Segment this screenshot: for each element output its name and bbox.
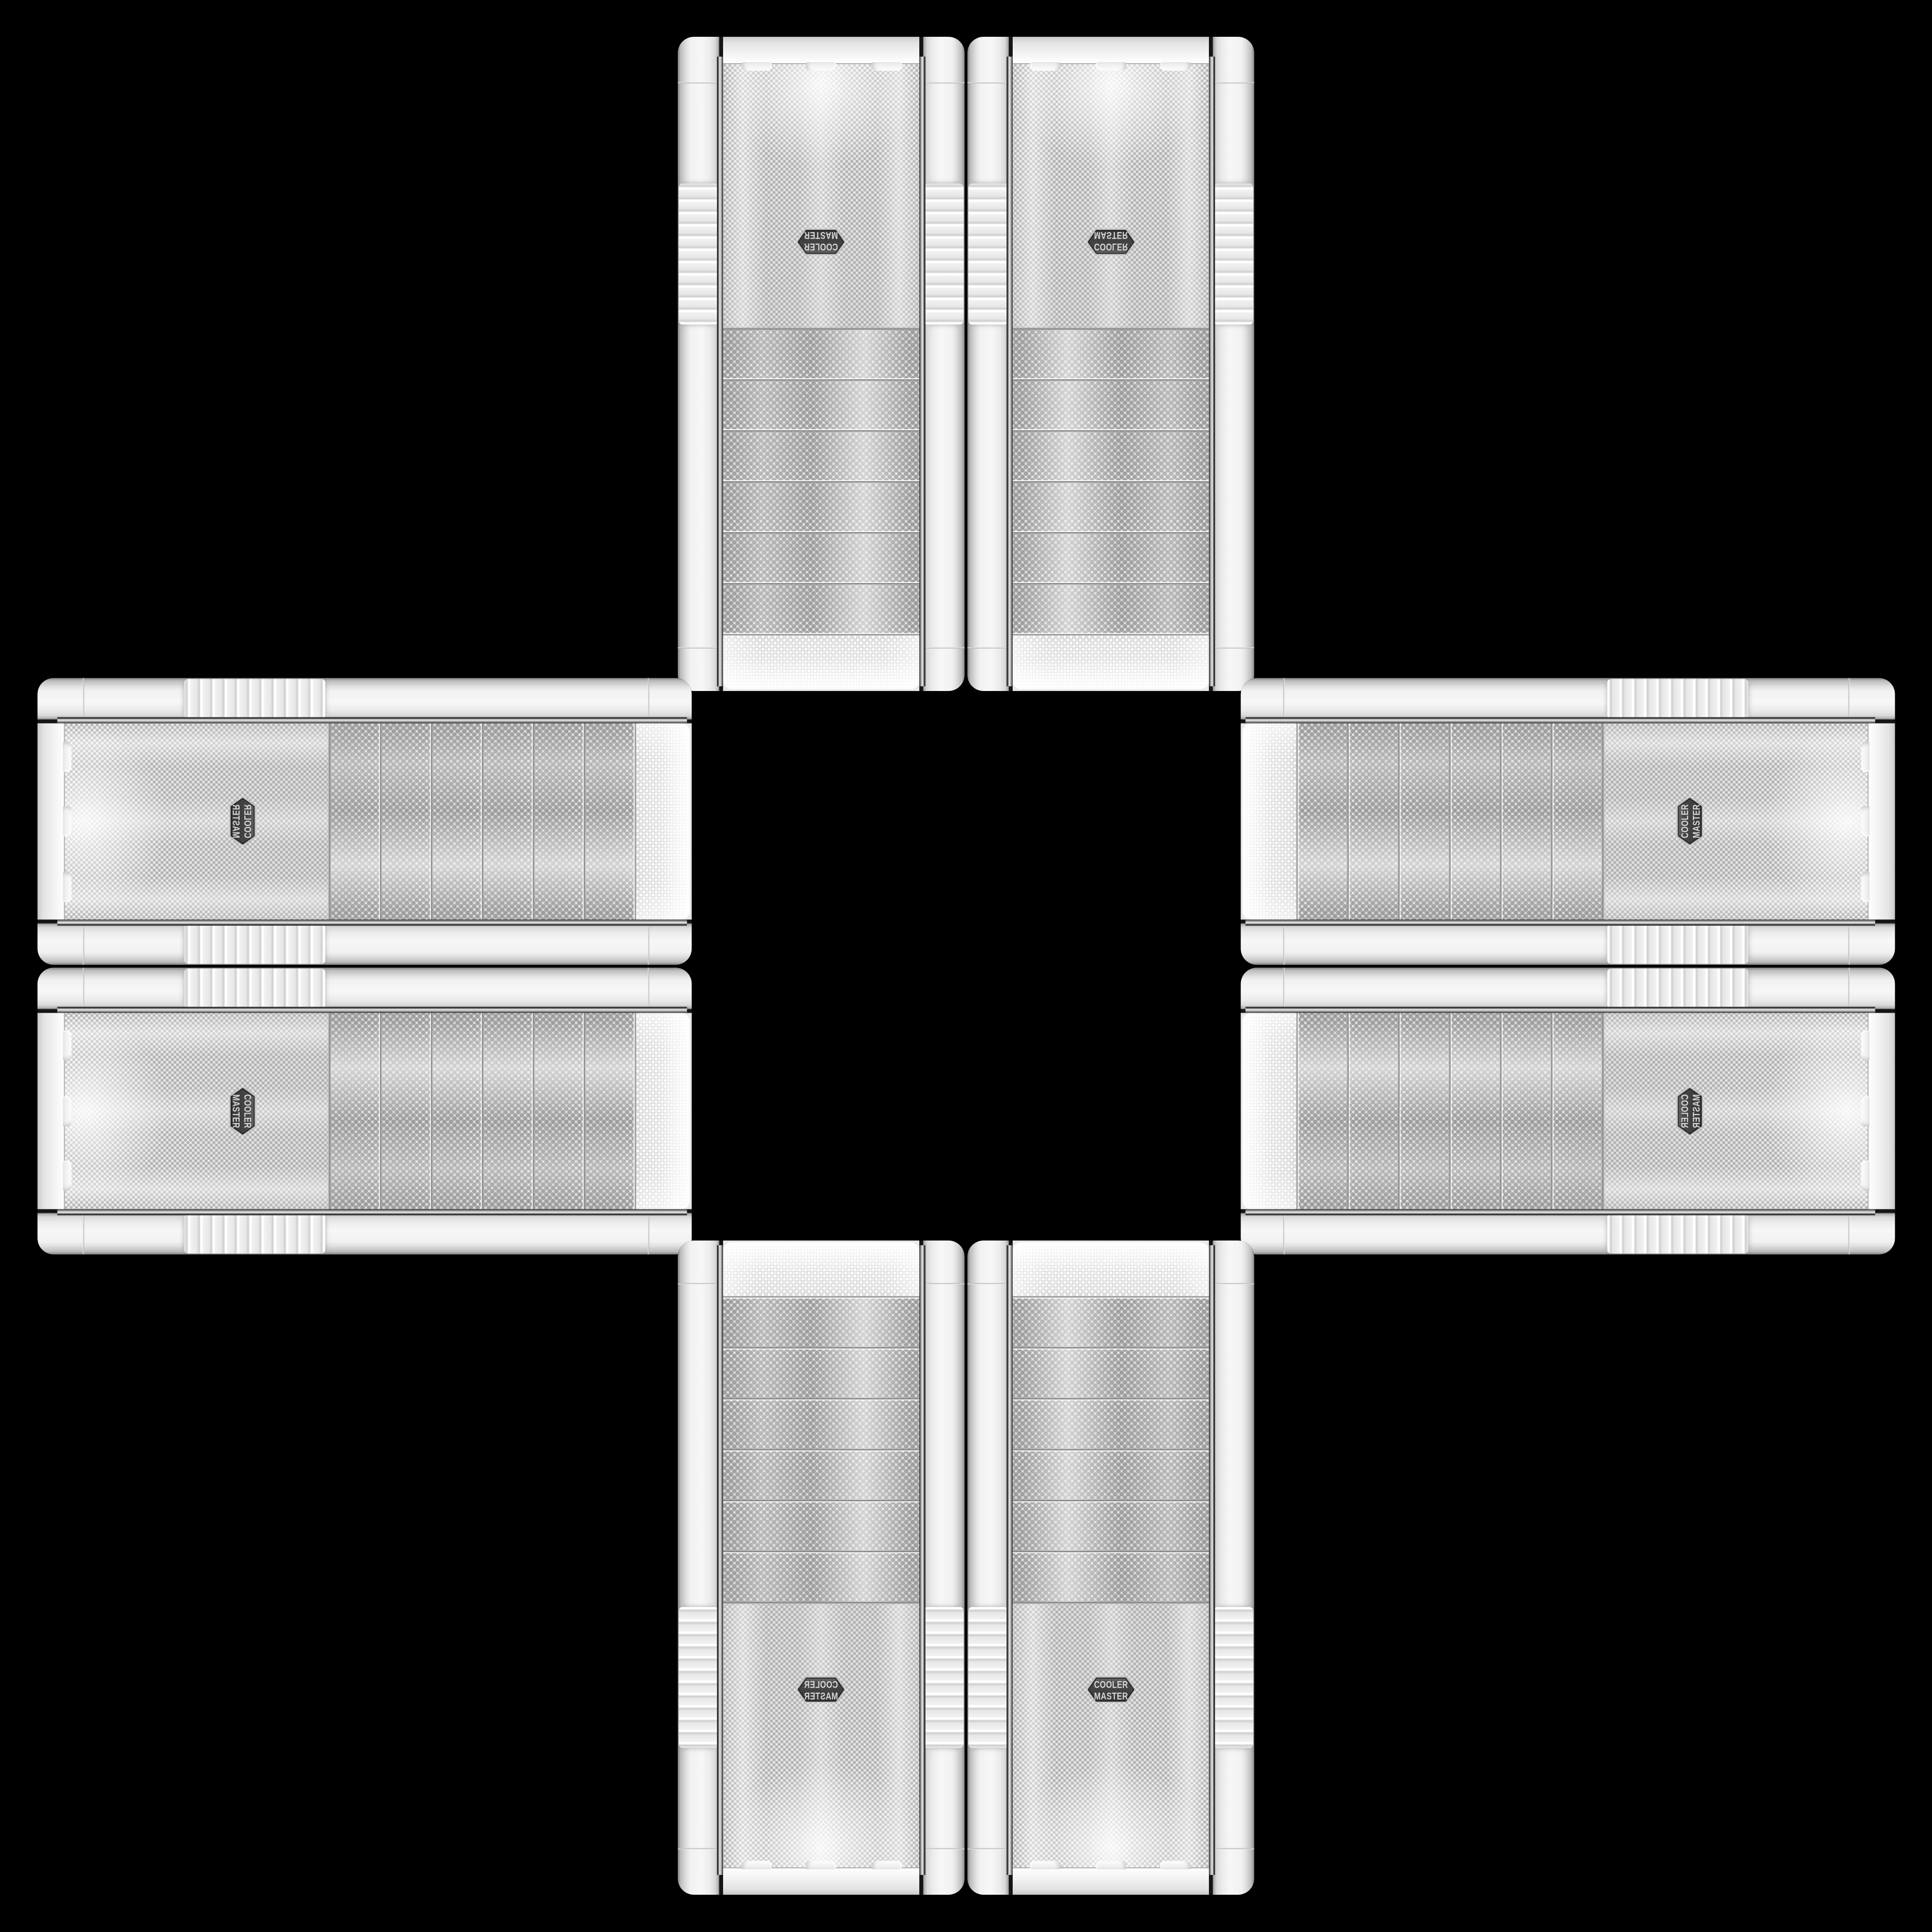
drive-bay-cover [583, 723, 634, 919]
case-side-rail-right [1213, 37, 1254, 691]
pc-case-right-top: COOLER MASTER [1241, 678, 1895, 965]
drive-bay-cover [1013, 1450, 1209, 1501]
front-panel: COOLER MASTER [723, 1241, 919, 1895]
drive-bay-cover [1450, 1013, 1501, 1209]
rail-seam [1848, 1213, 1849, 1254]
drive-bay-cover [1552, 1013, 1603, 1209]
drive-bay-covers [1013, 328, 1209, 634]
drive-bay-cover [1399, 1013, 1450, 1209]
drive-bay-cover [723, 328, 919, 379]
fan-intake-mesh: COOLER MASTER [1603, 1013, 1868, 1209]
bumper-scallop [741, 62, 772, 71]
case-side-rail-right [678, 37, 719, 691]
drive-bay-cover [723, 379, 919, 430]
top-hood-mesh [1013, 634, 1209, 689]
drive-bay-cover [1013, 379, 1209, 430]
badge-text-line1: COOLER [242, 804, 253, 838]
rail-seam [648, 678, 649, 719]
rail-seam [1283, 967, 1284, 1009]
rail-seam [648, 923, 649, 965]
chrome-trim-right [717, 1245, 723, 1875]
case-side-rail-left [967, 37, 1009, 691]
case-side-rail-right [1241, 678, 1895, 719]
drive-bay-covers [329, 723, 634, 919]
rail-seam [83, 1213, 84, 1254]
drive-bay-cover [723, 481, 919, 532]
front-panel: COOLER MASTER [1241, 1013, 1895, 1209]
bottom-bumper [1013, 37, 1209, 64]
cooler-master-badge-icon: COOLER MASTER [796, 1673, 847, 1706]
rail-seam [678, 1283, 719, 1284]
chrome-trim-left [1245, 1007, 1875, 1013]
fan-intake-mesh: COOLER MASTER [64, 723, 329, 919]
drive-bay-cover [1013, 328, 1209, 379]
rail-grip-ribs [1607, 968, 1748, 1008]
rail-grip-ribs [1607, 679, 1748, 718]
top-hood-mesh [634, 723, 690, 919]
drive-bay-cover [533, 723, 583, 919]
fan-intake-mesh: COOLER MASTER [1013, 1603, 1209, 1868]
chrome-trim-right [1209, 57, 1215, 686]
badge-text-line1: COOLER [1680, 1094, 1690, 1128]
rail-seam [678, 82, 719, 83]
rail-seam [923, 1283, 965, 1284]
rail-seam [967, 82, 1009, 83]
drive-bay-cover [1450, 723, 1501, 919]
drive-bay-cover [723, 1450, 919, 1501]
drive-bay-cover [482, 1013, 533, 1209]
drive-bay-cover [1013, 430, 1209, 481]
drive-bay-cover [723, 1501, 919, 1552]
drive-bay-cover [1013, 1501, 1209, 1552]
front-panel: COOLER MASTER [1013, 1241, 1209, 1895]
rail-grip-ribs [679, 1607, 718, 1748]
rail-grip-ribs [184, 1214, 325, 1253]
drive-bay-cover [1013, 481, 1209, 532]
bumper-scallop [1030, 1861, 1060, 1869]
rail-grip-ribs [679, 183, 718, 325]
drive-bay-cover [431, 1013, 482, 1209]
chrome-trim-right [1245, 717, 1875, 723]
bumper-scallop [1861, 1030, 1869, 1060]
drive-bay-covers [1298, 1013, 1603, 1209]
rail-seam [1283, 678, 1284, 719]
drive-bay-cover [1298, 723, 1349, 919]
cooler-master-badge-icon: COOLER MASTER [226, 1086, 259, 1136]
rail-seam [1213, 1283, 1254, 1284]
rail-grip-ribs [968, 1607, 1008, 1748]
drive-bay-cover [329, 723, 380, 919]
badge-text-line2: MASTER [230, 1094, 241, 1128]
drive-bay-cover [1501, 723, 1552, 919]
top-hood-mesh [634, 1013, 690, 1209]
rail-grip-ribs [1214, 1607, 1253, 1748]
badge-text-line2: MASTER [1094, 1691, 1128, 1702]
bottom-bumper [1867, 1013, 1895, 1209]
fan-intake-mesh: COOLER MASTER [723, 1603, 919, 1868]
drive-bay-cover [1013, 1399, 1209, 1450]
chrome-trim-right [717, 57, 723, 686]
bumper-scallop [1861, 741, 1869, 772]
bumper-scallop [1160, 62, 1191, 71]
bumper-scallop [1096, 62, 1126, 71]
fan-intake-mesh: COOLER MASTER [1013, 63, 1209, 328]
badge-text-line1: COOLER [1680, 804, 1690, 838]
rail-seam [1848, 678, 1849, 719]
product-collage: COOLER MASTER [0, 0, 1932, 1932]
top-hood-mesh [723, 634, 919, 689]
bumper-scallop [806, 1861, 836, 1869]
badge-text-line2: MASTER [1691, 804, 1702, 838]
bumper-scallop [63, 806, 71, 836]
rail-grip-ribs [184, 924, 325, 964]
chrome-trim-left [57, 1007, 687, 1013]
fan-intake-mesh: COOLER MASTER [723, 63, 919, 328]
drive-bay-cover [1013, 1298, 1209, 1349]
drive-bay-covers [329, 1013, 634, 1209]
chrome-trim-left [1245, 919, 1875, 925]
chrome-trim-right [1209, 1245, 1215, 1875]
bottom-bumper [1867, 723, 1895, 919]
bumper-scallop [1861, 806, 1869, 836]
front-panel: COOLER MASTER [723, 37, 919, 691]
front-panel: COOLER MASTER [37, 723, 691, 919]
bottom-bumper [723, 1867, 919, 1895]
rail-grip-ribs [968, 183, 1008, 325]
rail-seam [1283, 1213, 1284, 1254]
top-hood-mesh [1242, 1013, 1298, 1209]
rail-grip-ribs [1607, 1214, 1748, 1253]
drive-bay-cover [482, 723, 533, 919]
drive-bay-cover [431, 723, 482, 919]
drive-bay-cover [1349, 723, 1399, 919]
chrome-trim-left [1007, 1245, 1013, 1875]
drive-bay-cover [723, 583, 919, 634]
pc-case-left-top: COOLER MASTER [37, 678, 691, 965]
bumper-scallop [63, 1160, 71, 1191]
chrome-trim-left [1007, 57, 1013, 686]
cooler-master-badge-icon: COOLER MASTER [226, 796, 259, 847]
bumper-scallop [63, 872, 71, 902]
case-side-rail-left [37, 923, 691, 965]
rail-seam [923, 82, 965, 83]
pc-case-right-bottom: COOLER MASTER [1241, 967, 1895, 1254]
case-side-rail-left [967, 1241, 1009, 1895]
drive-bay-cover [1013, 583, 1209, 634]
case-side-rail-left [923, 37, 965, 691]
case-side-rail-right [37, 1213, 691, 1254]
cooler-master-badge-icon: COOLER MASTER [1086, 225, 1136, 258]
drive-bay-cover [723, 1298, 919, 1349]
rail-grip-ribs [1214, 183, 1253, 325]
rail-grip-ribs [924, 183, 964, 325]
drive-bay-cover [1013, 1349, 1209, 1399]
badge-text-line1: COOLER [804, 241, 838, 252]
case-side-rail-left [37, 967, 691, 1009]
rail-seam [967, 1283, 1009, 1284]
fan-intake-mesh: COOLER MASTER [64, 1013, 329, 1209]
front-panel: COOLER MASTER [1241, 723, 1895, 919]
case-side-rail-right [1241, 1213, 1895, 1254]
bottom-bumper [37, 723, 65, 919]
badge-text-line2: MASTER [1691, 1094, 1702, 1128]
top-hood-mesh [1242, 723, 1298, 919]
bumper-scallop [1861, 1160, 1869, 1191]
bumper-scallop [1096, 1861, 1126, 1869]
chrome-trim-right [57, 1209, 687, 1215]
top-hood-mesh [1013, 1242, 1209, 1298]
pc-case-bottom-right: COOLER MASTER [967, 1241, 1254, 1895]
pc-case-top-left: COOLER MASTER [678, 37, 965, 691]
case-side-rail-left [1241, 923, 1895, 965]
case-side-rail-left [1241, 967, 1895, 1009]
bumper-scallop [1861, 872, 1869, 902]
drive-bay-cover [1013, 532, 1209, 583]
badge-text-line2: MASTER [804, 230, 838, 241]
bumper-scallop [63, 1096, 71, 1126]
rail-seam [1848, 967, 1849, 1009]
drive-bay-cover [723, 430, 919, 481]
rail-seam [83, 967, 84, 1009]
rail-grip-ribs [184, 679, 325, 718]
cooler-master-badge-icon: COOLER MASTER [1673, 796, 1706, 847]
bumper-scallop [806, 62, 836, 71]
drive-bay-covers [723, 328, 919, 634]
rail-grip-ribs [1607, 924, 1748, 964]
drive-bay-cover [329, 1013, 380, 1209]
drive-bay-cover [533, 1013, 583, 1209]
drive-bay-cover [1013, 1552, 1209, 1603]
front-panel: COOLER MASTER [1013, 37, 1209, 691]
rail-seam [648, 1213, 649, 1254]
bumper-scallop [1030, 62, 1060, 71]
rail-seam [1848, 923, 1849, 965]
bumper-scallop [63, 741, 71, 772]
case-side-rail-right [37, 678, 691, 719]
bumper-scallop [63, 1030, 71, 1060]
chrome-trim-right [57, 717, 687, 723]
cooler-master-badge-icon: COOLER MASTER [796, 225, 847, 258]
drive-bay-covers [1013, 1298, 1209, 1603]
rail-seam [1213, 82, 1254, 83]
pc-case-bottom-left: COOLER MASTER [678, 1241, 965, 1895]
drive-bay-cover [723, 532, 919, 583]
case-side-rail-right [678, 1241, 719, 1895]
rail-seam [967, 647, 1009, 649]
badge-text-line1: COOLER [1094, 241, 1128, 252]
drive-bay-cover [723, 1399, 919, 1450]
chrome-trim-left [919, 57, 925, 686]
drive-bay-cover [1552, 723, 1603, 919]
chrome-trim-left [919, 1245, 925, 1875]
rail-seam [923, 647, 965, 649]
drive-bay-cover [380, 723, 431, 919]
bottom-bumper [37, 1013, 65, 1209]
rail-seam [1283, 923, 1284, 965]
fan-intake-mesh: COOLER MASTER [1603, 723, 1868, 919]
badge-text-line1: COOLER [804, 1680, 838, 1690]
drive-bay-covers [1298, 723, 1603, 919]
chrome-trim-right [1245, 1209, 1875, 1215]
bumper-scallop [872, 62, 902, 71]
bumper-scallop [1861, 1096, 1869, 1126]
drive-bay-cover [1298, 1013, 1349, 1209]
front-panel: COOLER MASTER [37, 1013, 691, 1209]
rail-seam [923, 1848, 965, 1849]
bumper-scallop [872, 1861, 902, 1869]
badge-text-line1: COOLER [242, 1094, 253, 1128]
drive-bay-cover [380, 1013, 431, 1209]
badge-text-line1: COOLER [1094, 1680, 1128, 1690]
bottom-bumper [723, 37, 919, 64]
badge-text-line2: MASTER [1094, 230, 1128, 241]
cooler-master-badge-icon: COOLER MASTER [1673, 1086, 1706, 1136]
bumper-scallop [741, 1861, 772, 1869]
bottom-bumper [1013, 1867, 1209, 1895]
drive-bay-cover [1349, 1013, 1399, 1209]
rail-seam [1213, 1848, 1254, 1849]
bumper-scallop [1160, 1861, 1191, 1869]
rail-seam [83, 923, 84, 965]
case-side-rail-right [1213, 1241, 1254, 1895]
drive-bay-cover [583, 1013, 634, 1209]
pc-case-left-bottom: COOLER MASTER [37, 967, 691, 1254]
drive-bay-cover [723, 1349, 919, 1399]
drive-bay-covers [723, 1298, 919, 1603]
rail-seam [678, 647, 719, 649]
drive-bay-cover [1501, 1013, 1552, 1209]
drive-bay-cover [723, 1552, 919, 1603]
pc-case-top-right: COOLER MASTER [967, 37, 1254, 691]
top-hood-mesh [723, 1242, 919, 1298]
rail-seam [967, 1848, 1009, 1849]
badge-text-line2: MASTER [804, 1691, 838, 1702]
rail-seam [678, 1848, 719, 1849]
badge-text-line2: MASTER [230, 804, 241, 838]
rail-grip-ribs [924, 1607, 964, 1748]
chrome-trim-left [57, 919, 687, 925]
rail-seam [1213, 647, 1254, 649]
drive-bay-cover [1399, 723, 1450, 919]
cooler-master-badge-icon: COOLER MASTER [1086, 1673, 1136, 1706]
case-side-rail-left [923, 1241, 965, 1895]
rail-seam [83, 678, 84, 719]
rail-grip-ribs [184, 968, 325, 1008]
rail-seam [648, 967, 649, 1009]
